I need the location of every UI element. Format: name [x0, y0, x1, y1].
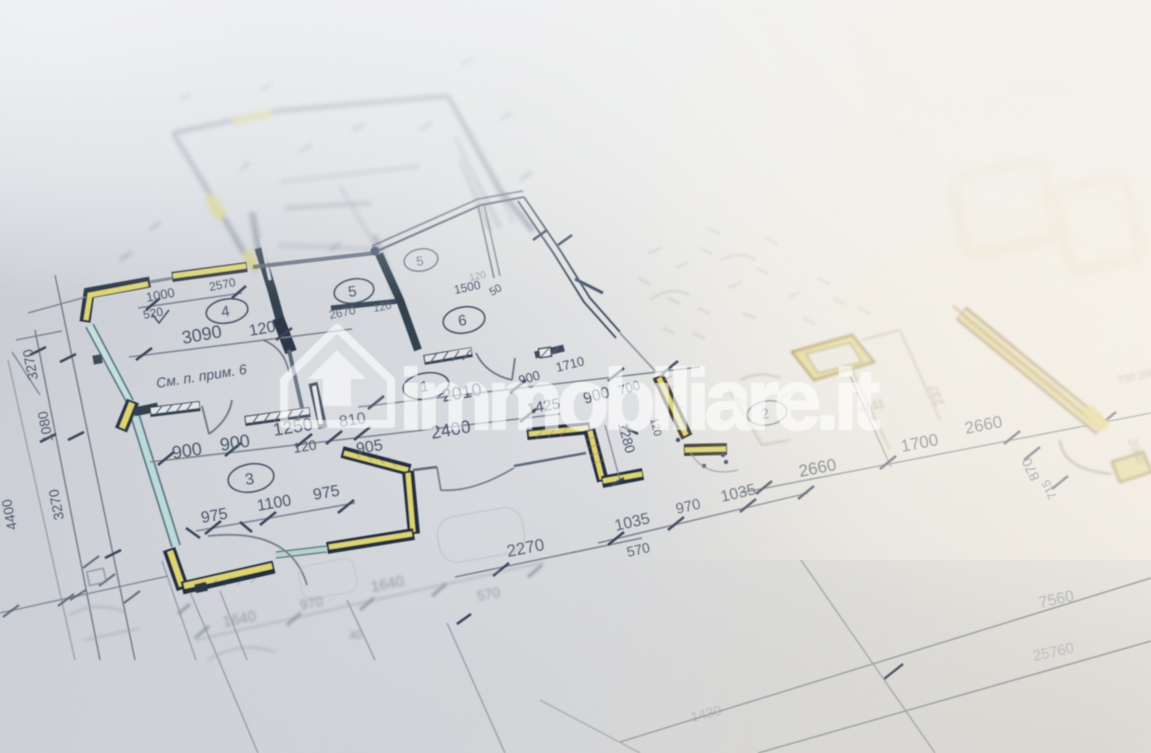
- svg-text:immobiliare.it: immobiliare.it: [399, 353, 880, 448]
